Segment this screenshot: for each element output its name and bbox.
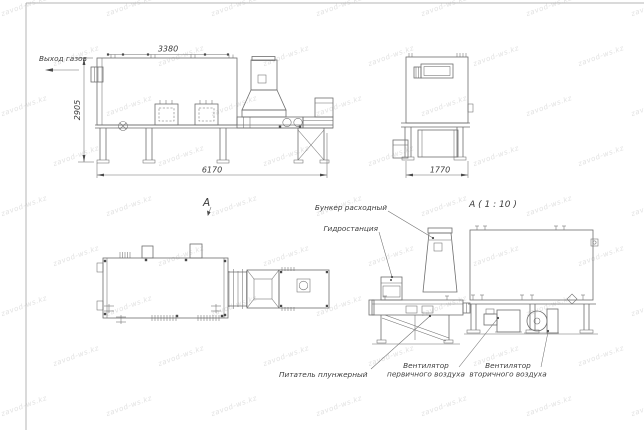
dim-3380-label: 3380 [158, 45, 178, 54]
plan-comb-top [120, 252, 130, 258]
plan-ibeam-3 [211, 304, 221, 313]
technical-drawing: 3380 2905 6170 Выход га [0, 0, 644, 430]
top-bolts [111, 55, 233, 59]
inspection-hatch-2 [195, 100, 218, 125]
consumable-hopper [423, 228, 457, 292]
plan-feeder-housing [279, 267, 329, 311]
side-ground-box [393, 140, 408, 158]
gas-outlet-callout: Выход газов [39, 54, 87, 72]
support-legs [97, 128, 229, 163]
side-ash-box [418, 130, 458, 157]
dim-1770-label: 1770 [430, 166, 450, 175]
inspection-hatch-1 [155, 100, 178, 125]
furnace-plan [103, 258, 228, 318]
feeder-truss [294, 128, 329, 163]
dim-6170: 6170 [97, 133, 327, 178]
plan-hatch-1 [142, 246, 153, 258]
plan-flanged-tube [228, 269, 247, 309]
sheet-frame [26, 3, 644, 430]
hydraulic-callout-label: Гидростанция [323, 224, 378, 233]
discharge-conveyor [303, 98, 333, 128]
drawing-sheet: zavod-ws.kzzavod-ws.kzzavod-ws.kzzavod-w… [0, 0, 644, 430]
feeder-callout-label: Питатель плунжерный [279, 370, 368, 379]
dim-6170-label: 6170 [202, 166, 222, 175]
plan-hatch-2 [190, 244, 202, 258]
plan-ibeam-1 [104, 304, 114, 313]
hopper-tower [237, 57, 303, 129]
hopper-callout-label: Бункер расходный [315, 203, 387, 212]
plan-flange-left-2 [97, 301, 103, 310]
view-a-marker: А [202, 197, 211, 216]
front-view: 3380 2905 6170 Выход га [39, 45, 333, 217]
damper-handle [567, 294, 577, 304]
plan-ibeam-2 [116, 315, 126, 324]
plan-hopper [247, 270, 279, 308]
gas-outlet-label: Выход газов [39, 54, 87, 63]
detail-title: А ( 1 : 10 ) [468, 200, 517, 210]
hopper-callout: Бункер расходный [315, 203, 434, 239]
plan-bolt-dots [104, 259, 226, 317]
side-hatch [414, 64, 453, 78]
drain-valve [119, 122, 128, 131]
dim-3380: 3380 [107, 45, 229, 56]
feeder-support-frame [372, 315, 460, 344]
hydraulic-station [381, 277, 402, 300]
side-top-bolts [409, 53, 466, 57]
primary-fan-callout-line2: первичного воздуха [387, 370, 465, 379]
side-legs [402, 127, 466, 160]
secondary-fan-callout-line2: вторичного воздуха [469, 370, 546, 379]
dim-1770: 1770 [406, 161, 468, 178]
furnace-body [97, 55, 237, 126]
dim-2905-label: 2905 [73, 100, 82, 120]
view-a-arrow-icon [207, 211, 211, 217]
hydraulic-callout: Гидростанция [323, 224, 393, 278]
side-lug [468, 104, 473, 112]
plan-flange-left-1 [97, 263, 103, 272]
gas-flow-arrow-icon [45, 68, 53, 72]
secondary-air-fan [524, 309, 559, 333]
rail-studs [471, 295, 585, 300]
side-view: 1770 [393, 53, 473, 178]
lifting-lug [591, 239, 598, 246]
side-platform [401, 123, 470, 127]
plan-view [97, 244, 329, 324]
detail-view: А ( 1 : 10 ) [279, 200, 598, 379]
plunger-feeder [369, 296, 470, 315]
detail-furnace [468, 226, 598, 304]
view-a-label: А [202, 197, 210, 209]
secondary-fan-callout: Вентилятор вторичного воздуха [469, 330, 549, 379]
